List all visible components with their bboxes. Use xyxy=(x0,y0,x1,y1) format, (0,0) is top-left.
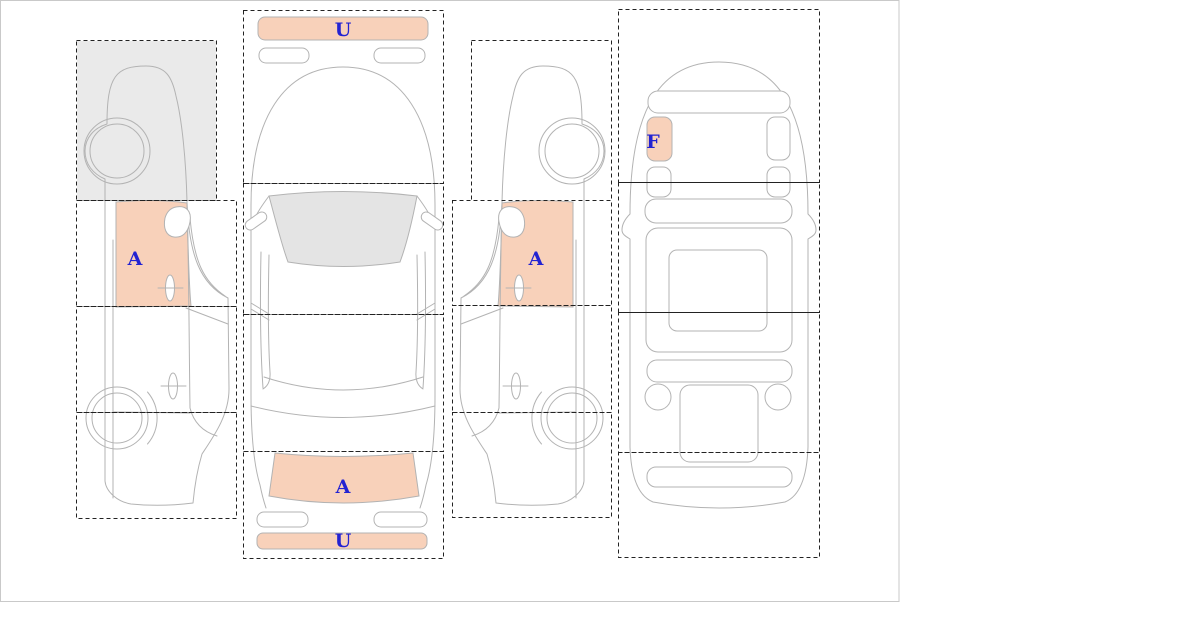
damage-marker-trunk[interactable]: A xyxy=(335,476,351,498)
headlight-right xyxy=(374,48,425,63)
damage-marker-right-front-door[interactable]: A xyxy=(528,248,544,270)
trunk-compartment xyxy=(680,385,758,462)
damage-marker-front-left-seat[interactable]: F xyxy=(646,131,660,153)
taillight-right xyxy=(374,512,427,527)
rear-bench-back xyxy=(645,199,792,223)
trunk-sill xyxy=(647,467,792,487)
taillight-left xyxy=(257,512,308,527)
damage-diagram-page: A U A U A xyxy=(0,0,1200,621)
cabin-floor-inner xyxy=(669,250,767,331)
front-right-seat xyxy=(767,117,790,160)
left-view-front-shaded-fill xyxy=(77,41,216,200)
rear-speaker-right xyxy=(765,384,791,410)
windshield xyxy=(269,192,417,267)
damage-marker-left-front-door[interactable]: A xyxy=(127,248,143,270)
damage-marker-front-bumper[interactable]: U xyxy=(335,19,352,41)
damage-marker-rear-bumper[interactable]: U xyxy=(335,530,352,552)
damage-diagram-canvas: A U A U A xyxy=(0,0,1200,621)
rear-shelf xyxy=(647,360,792,382)
rear-speaker-left xyxy=(645,384,671,410)
headlight-left xyxy=(259,48,309,63)
dashboard xyxy=(648,91,790,113)
